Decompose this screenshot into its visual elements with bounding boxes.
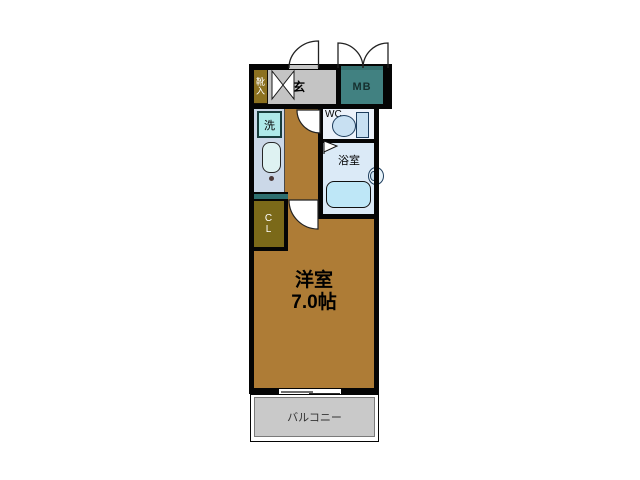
closet: C L: [254, 201, 288, 251]
main-room-size: 7.0帖: [254, 292, 374, 314]
toilet-bowl-icon: [332, 115, 356, 137]
wall-right: [374, 104, 379, 393]
toilet-tank-icon: [356, 112, 369, 138]
closet-label-c: C: [265, 213, 273, 224]
meter-box: MB: [341, 70, 383, 104]
wall-corridor: [318, 109, 323, 219]
counter-end-panel: [254, 192, 288, 201]
bathtub-icon: [326, 181, 371, 208]
floorplan-canvas: 洋室 7.0帖 玄 MB 靴入 洗 C L WC 浴室 バルコニー: [0, 0, 640, 480]
wall-top-right: [383, 64, 392, 109]
wall-wc-bath: [318, 139, 374, 143]
washer-space: 洗: [257, 111, 282, 138]
entrance-door-opening: [289, 65, 318, 69]
shoe-cabinet: 靴入: [252, 68, 268, 104]
wall-top-left: [249, 64, 254, 109]
wall-entrance-mb: [336, 70, 341, 104]
wall-below-bath: [318, 214, 379, 219]
main-room-label: 洋室 7.0帖: [254, 270, 374, 314]
entrance-label: 玄: [293, 78, 317, 95]
meter-box-door-opening: [341, 66, 383, 70]
wall-left: [249, 109, 254, 393]
stove-dot-icon: [269, 176, 274, 181]
bathroom-label: 浴室: [338, 152, 360, 168]
main-room-name: 洋室: [254, 270, 374, 292]
balcony-floor: バルコニー: [254, 397, 375, 437]
closet-label-l: L: [266, 224, 273, 235]
wall-below-entrance: [249, 104, 383, 109]
kitchen-sink-icon: [262, 142, 281, 173]
